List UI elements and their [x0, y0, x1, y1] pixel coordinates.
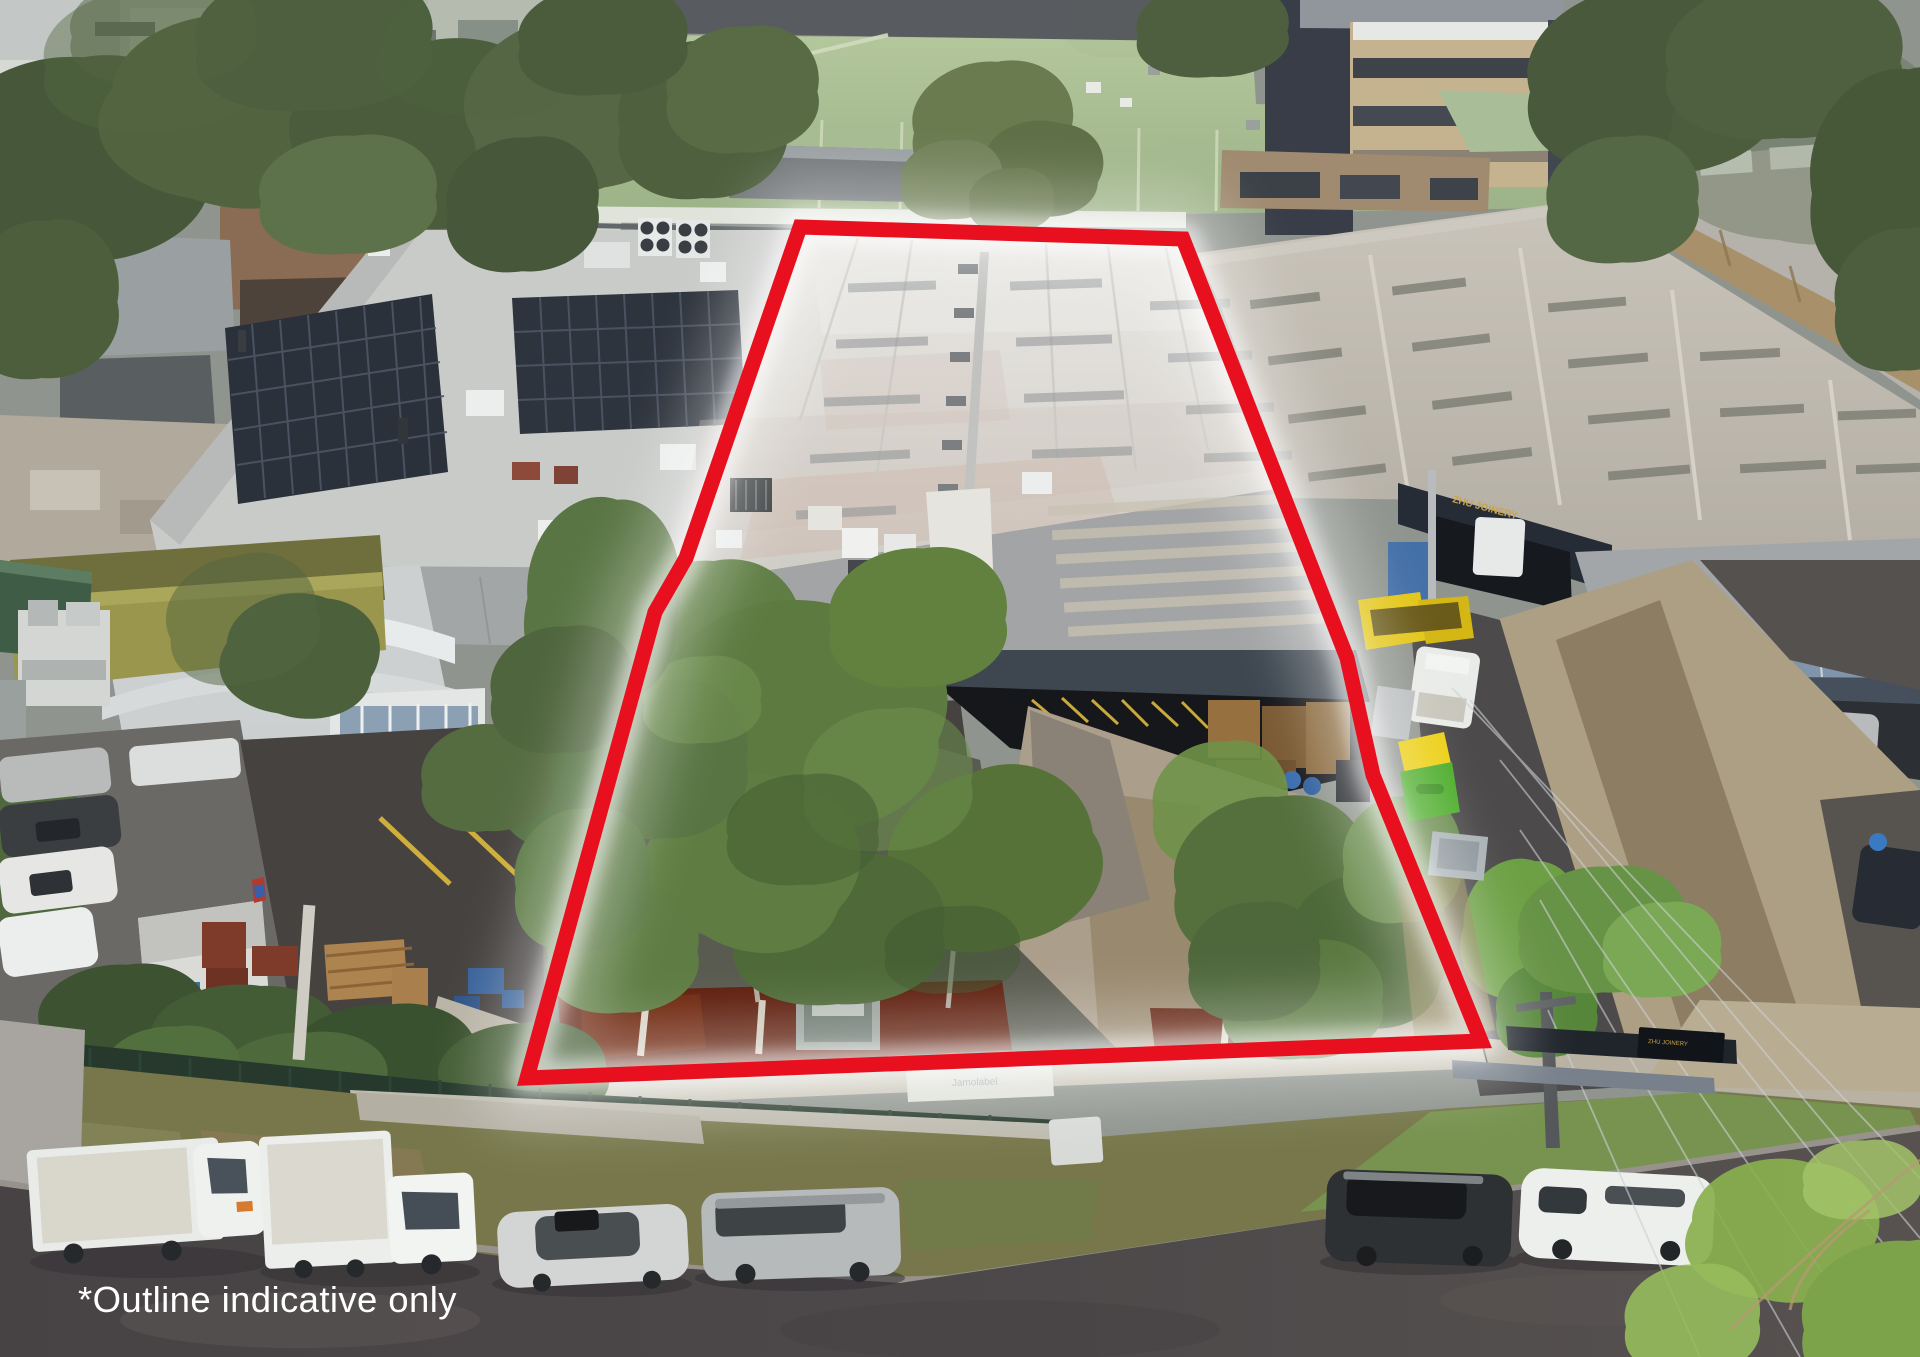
- svg-text:*Outline indicative only: *Outline indicative only: [78, 1279, 457, 1320]
